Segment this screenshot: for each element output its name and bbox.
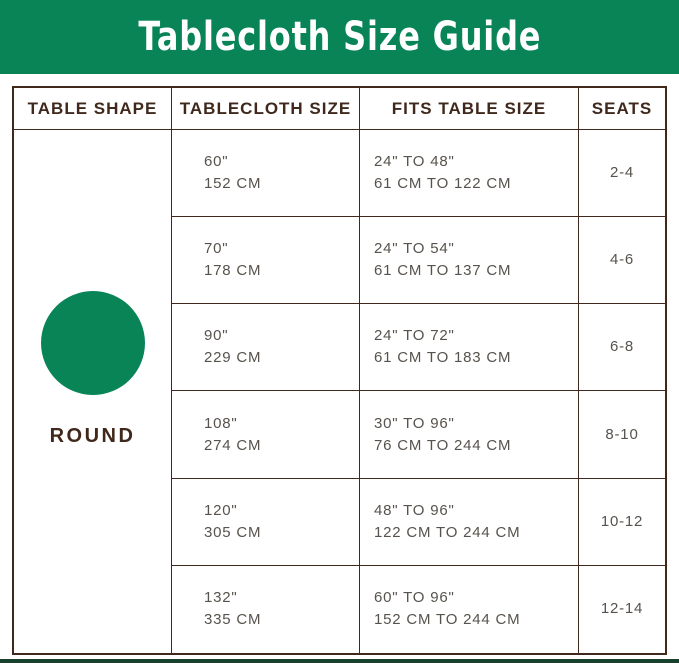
fits-inches: 60" TO 96" [374,587,578,609]
size-cm: 178 CM [204,260,359,282]
column-header-fits-table-size: FITS TABLE SIZE [360,88,579,130]
fits-inches: 48" TO 96" [374,500,578,522]
row-2-fits-table-size: 24" TO 54" 61 CM TO 137 CM [360,217,579,304]
size-inches: 70" [204,238,359,260]
column-header-tablecloth-size: TABLECLOTH SIZE [172,88,360,130]
size-cm: 274 CM [204,435,359,457]
row-2-tablecloth-size: 70" 178 CM [172,217,360,304]
seats-value: 8-10 [605,424,638,446]
fits-inches: 24" TO 48" [374,151,578,173]
fits-cm: 122 CM TO 244 CM [374,522,578,544]
fits-inches: 24" TO 54" [374,238,578,260]
tablecloth-size-guide-page: Tablecloth Size Guide TABLE SHAPE TABLEC… [0,0,679,663]
fits-cm: 61 CM TO 137 CM [374,260,578,282]
seats-value: 12-14 [601,598,643,620]
table-shape-cell: ROUND [14,130,172,653]
size-inches: 108" [204,413,359,435]
size-inches: 120" [204,500,359,522]
size-cm: 305 CM [204,522,359,544]
row-1-seats: 2-4 [579,130,665,217]
size-cm: 229 CM [204,347,359,369]
row-5-tablecloth-size: 120" 305 CM [172,479,360,566]
row-4-seats: 8-10 [579,391,665,478]
row-5-seats: 10-12 [579,479,665,566]
row-3-fits-table-size: 24" TO 72" 61 CM TO 183 CM [360,304,579,391]
column-header-seats: SEATS [579,88,665,130]
fits-cm: 152 CM TO 244 CM [374,609,578,631]
size-inches: 60" [204,151,359,173]
row-4-tablecloth-size: 108" 274 CM [172,391,360,478]
row-6-seats: 12-14 [579,566,665,653]
row-6-tablecloth-size: 132" 335 CM [172,566,360,653]
seats-value: 10-12 [601,511,643,533]
fits-cm: 76 CM TO 244 CM [374,435,578,457]
row-1-tablecloth-size: 60" 152 CM [172,130,360,217]
fits-cm: 61 CM TO 122 CM [374,173,578,195]
shape-label: ROUND [50,425,136,448]
row-3-tablecloth-size: 90" 229 CM [172,304,360,391]
title-banner: Tablecloth Size Guide [0,0,679,74]
size-inches: 132" [204,587,359,609]
size-inches: 90" [204,325,359,347]
row-5-fits-table-size: 48" TO 96" 122 CM TO 244 CM [360,479,579,566]
bottom-accent-bar [0,659,679,663]
row-2-seats: 4-6 [579,217,665,304]
fits-inches: 24" TO 72" [374,325,578,347]
shape-stack: ROUND [41,291,145,448]
seats-value: 4-6 [610,249,634,271]
size-guide-table: TABLE SHAPE TABLECLOTH SIZE FITS TABLE S… [12,86,667,655]
size-cm: 152 CM [204,173,359,195]
fits-cm: 61 CM TO 183 CM [374,347,578,369]
seats-value: 2-4 [610,162,634,184]
fits-inches: 30" TO 96" [374,413,578,435]
row-3-seats: 6-8 [579,304,665,391]
row-4-fits-table-size: 30" TO 96" 76 CM TO 244 CM [360,391,579,478]
round-shape-icon [41,291,145,395]
seats-value: 6-8 [610,336,634,358]
row-6-fits-table-size: 60" TO 96" 152 CM TO 244 CM [360,566,579,653]
size-cm: 335 CM [204,609,359,631]
row-1-fits-table-size: 24" TO 48" 61 CM TO 122 CM [360,130,579,217]
page-title: Tablecloth Size Guide [138,14,541,60]
column-header-table-shape: TABLE SHAPE [14,88,172,130]
